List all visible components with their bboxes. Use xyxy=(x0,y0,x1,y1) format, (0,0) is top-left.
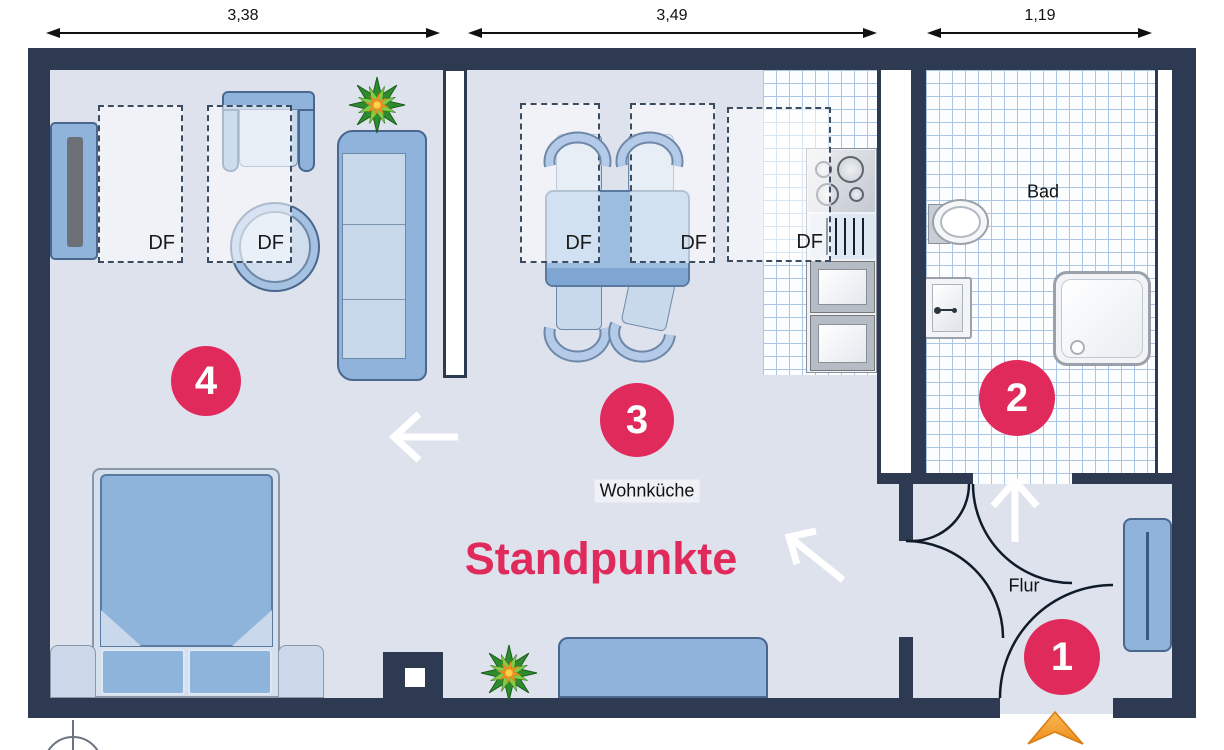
standpoint-badge-3[interactable]: 3 xyxy=(600,383,674,457)
wall-right xyxy=(1172,48,1196,718)
partition-wall xyxy=(443,68,467,378)
entrance-floor xyxy=(1000,698,1113,714)
bed-duvet xyxy=(100,474,273,647)
wall-top xyxy=(28,48,1196,70)
standpoint-number: 2 xyxy=(1006,376,1028,421)
wall-hall-left-lower xyxy=(899,637,913,698)
dimension-arrowheads xyxy=(46,28,1152,38)
shower-drain-icon xyxy=(1070,340,1085,355)
skylight-label: DF xyxy=(796,231,823,254)
shaft-left xyxy=(877,70,911,473)
skylight-df-5: DF xyxy=(727,107,831,262)
tv-lowboard xyxy=(50,122,98,260)
wall-bottom-left xyxy=(28,698,1000,718)
skylight-label: DF xyxy=(257,232,284,255)
bed-pillow-left xyxy=(101,649,185,695)
dimension-label-2: 3,49 xyxy=(652,7,691,25)
sink-basin xyxy=(810,261,875,313)
sofa-cushions xyxy=(342,153,406,359)
wall-hall-left-upper xyxy=(899,484,913,541)
toilet-bowl xyxy=(932,199,989,245)
shaft-right xyxy=(1155,70,1172,473)
standpoint-badge-1[interactable]: 1 xyxy=(1024,619,1100,695)
shower-tray xyxy=(1053,271,1151,366)
wall-bottom-right xyxy=(1113,698,1196,718)
skylight-df-1: DF xyxy=(98,105,183,263)
page-title: Standpunkte xyxy=(445,533,757,585)
room-label-wohnkueche: Wohnküche xyxy=(595,480,700,503)
chimney-flue xyxy=(405,668,425,687)
wall-hall-top-right xyxy=(1072,473,1172,484)
skylight-df-3: DF xyxy=(520,103,600,263)
nightstand-right xyxy=(278,645,324,698)
tv-screen xyxy=(67,137,83,247)
dimension-label-1: 3,38 xyxy=(223,7,262,25)
skylight-df-4: DF xyxy=(630,103,715,263)
armchair-armrest-right xyxy=(298,109,315,172)
entrance-arrow-icon xyxy=(1028,712,1083,744)
nightstand-left xyxy=(50,645,96,698)
standpoint-badge-2[interactable]: 2 xyxy=(979,360,1055,436)
sink-basin xyxy=(810,315,875,371)
standpoint-number: 1 xyxy=(1051,635,1073,680)
skylight-label: DF xyxy=(680,232,707,255)
floor-plan: DF DF DF DF DF xyxy=(0,0,1224,750)
dimension-label-3: 1,19 xyxy=(1020,7,1059,25)
room-label-bad: Bad xyxy=(1027,182,1059,203)
standpoint-number: 3 xyxy=(626,398,648,443)
bed-pillow-right xyxy=(188,649,272,695)
room-label-flur: Flur xyxy=(1009,576,1040,597)
skylight-label: DF xyxy=(148,232,175,255)
sideboard xyxy=(558,637,768,698)
sofa xyxy=(337,130,427,381)
chimney-block xyxy=(383,652,443,698)
skylight-df-2: DF xyxy=(207,105,292,263)
skylight-label: DF xyxy=(565,232,592,255)
wall-left xyxy=(28,48,50,718)
compass-icon xyxy=(44,720,102,750)
standpoint-number: 4 xyxy=(195,359,217,404)
standpoint-badge-4[interactable]: 4 xyxy=(171,346,241,416)
wardrobe xyxy=(1123,518,1172,652)
bathroom-sink xyxy=(924,277,972,339)
wall-bathroom-left xyxy=(911,70,926,484)
wall-hall-top-left xyxy=(877,473,973,484)
